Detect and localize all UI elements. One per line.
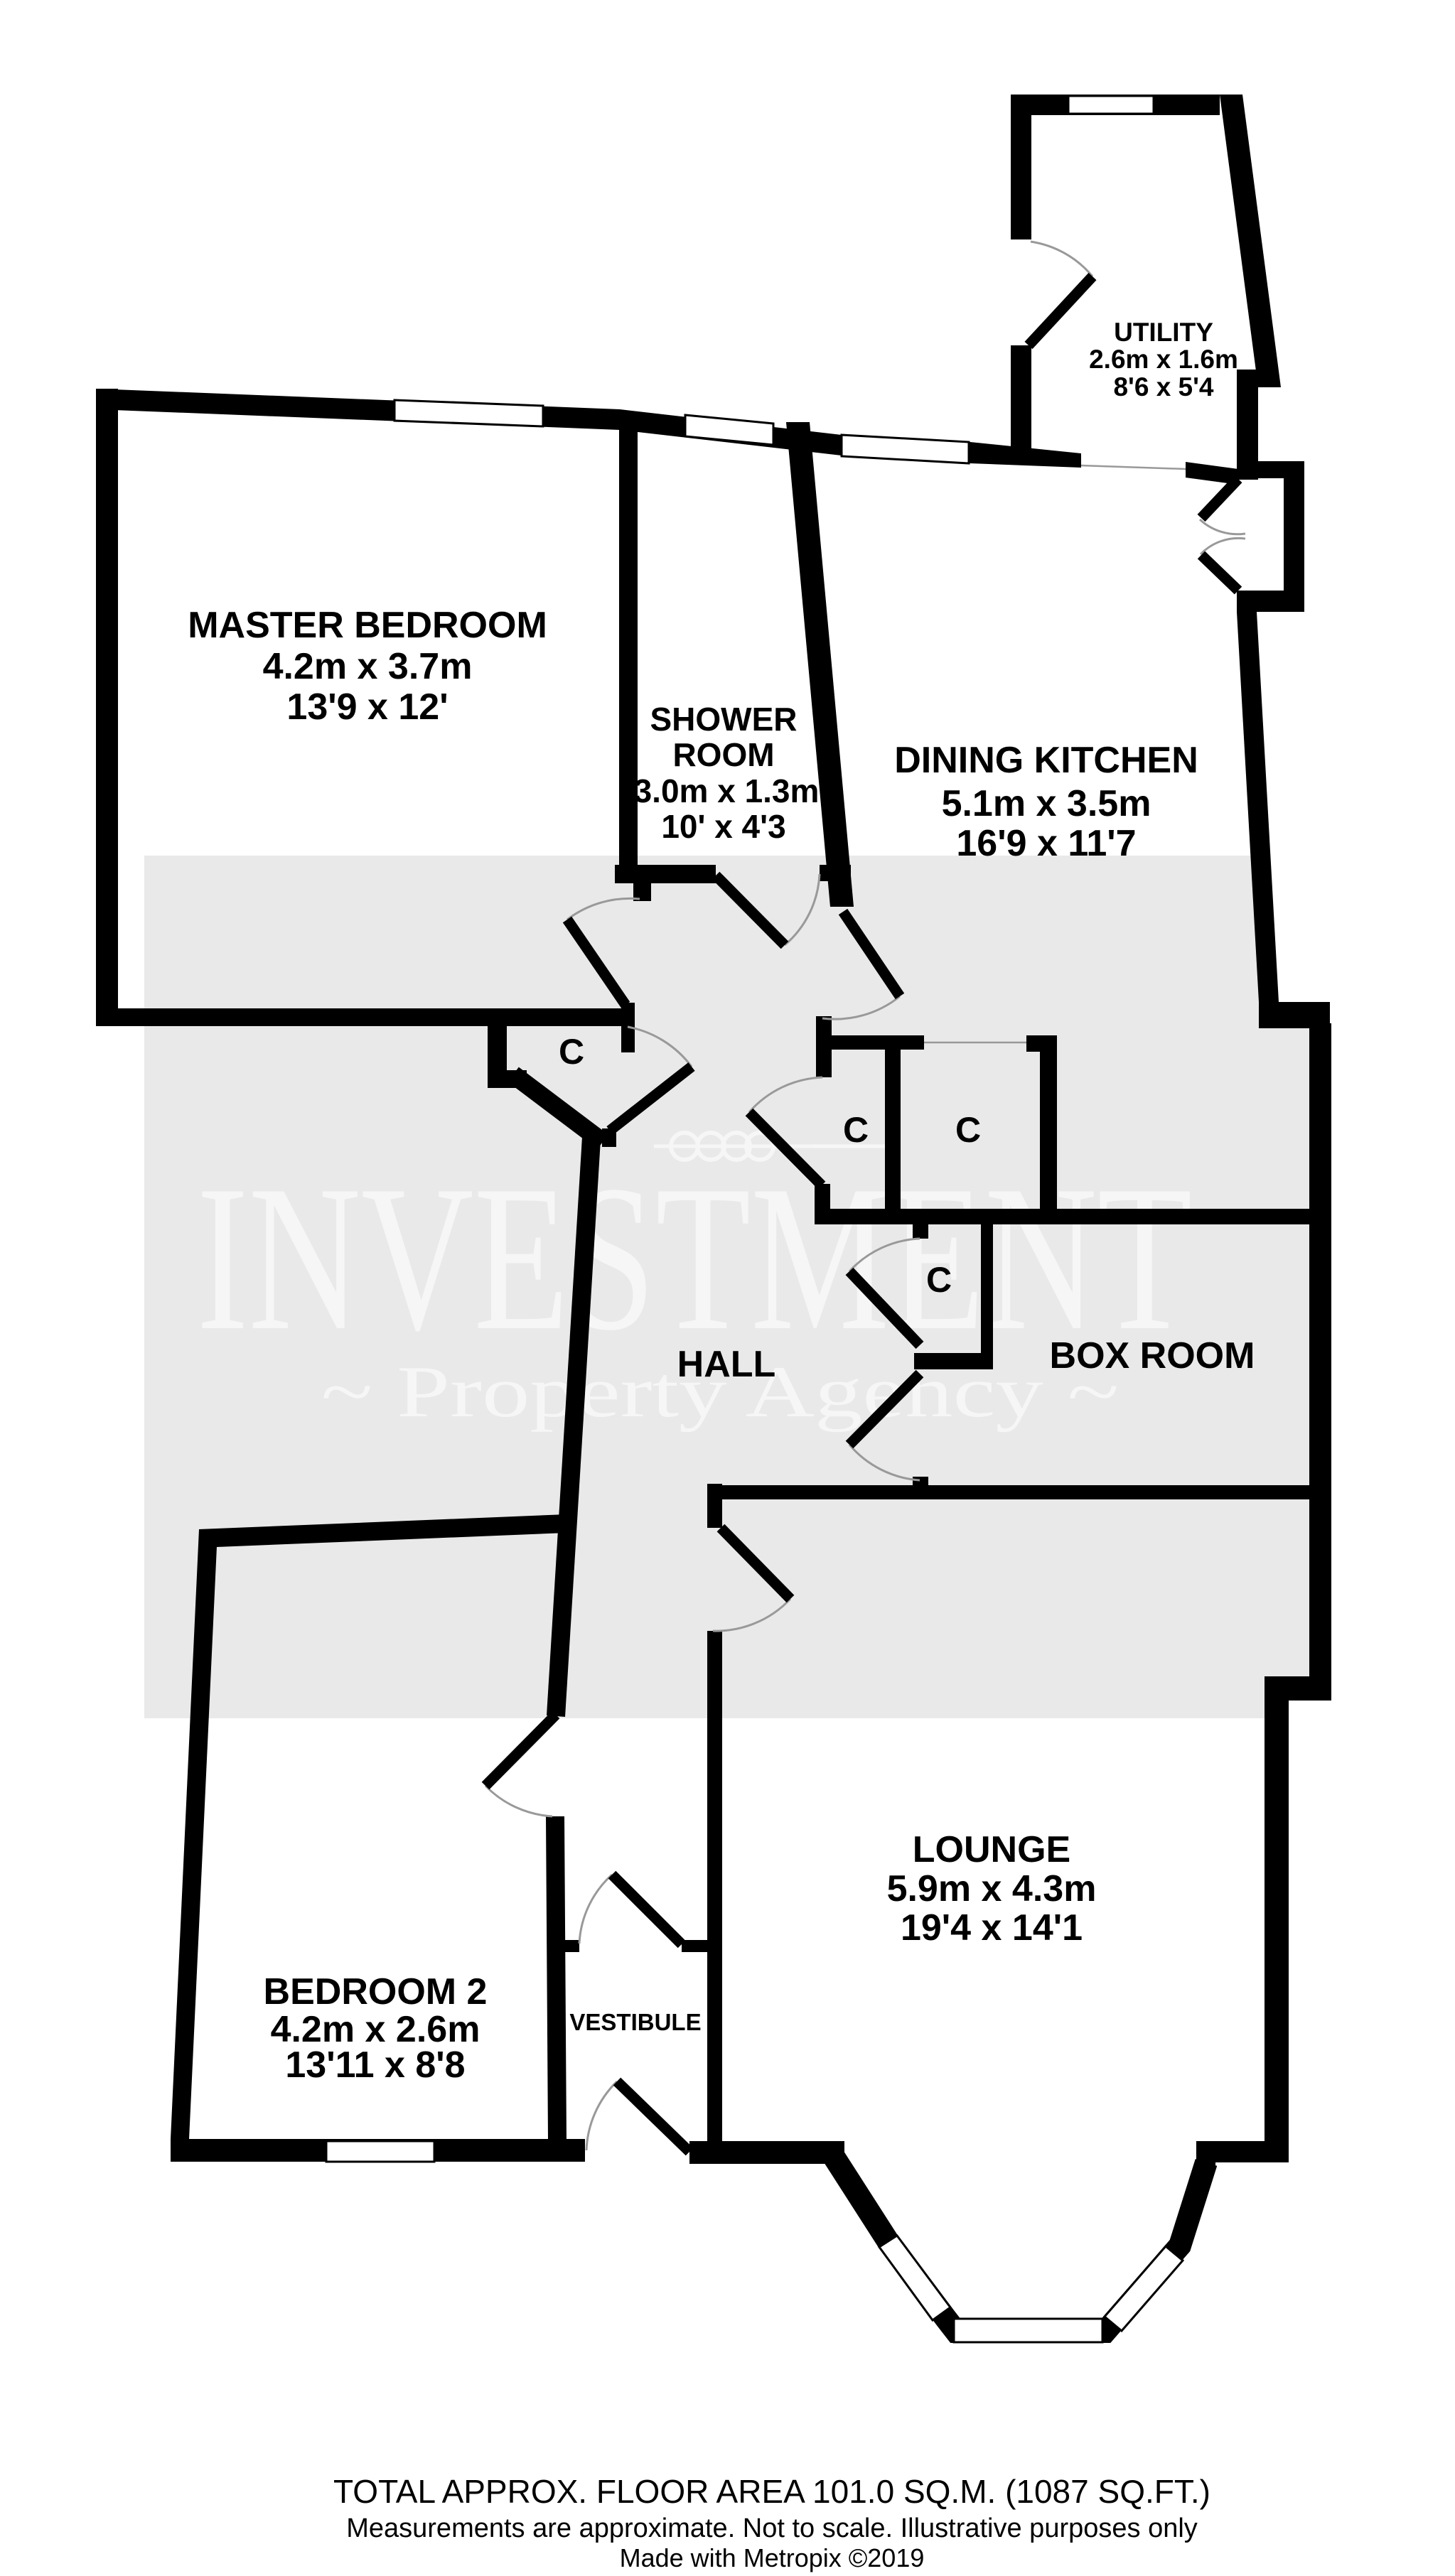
svg-text:UTILITY: UTILITY xyxy=(1114,318,1213,347)
svg-text:13'9 x 12': 13'9 x 12' xyxy=(286,686,448,728)
svg-text:BOX ROOM: BOX ROOM xyxy=(1050,1335,1255,1376)
svg-text:C: C xyxy=(955,1110,981,1150)
svg-text:5.9m x 4.3m: 5.9m x 4.3m xyxy=(887,1868,1097,1909)
svg-text:10' x 4'3: 10' x 4'3 xyxy=(661,808,785,845)
svg-text:MASTER BEDROOM: MASTER BEDROOM xyxy=(188,605,547,646)
svg-text:C: C xyxy=(926,1260,952,1300)
svg-text:VESTIBULE: VESTIBULE xyxy=(569,2009,701,2035)
svg-text:BEDROOM 2: BEDROOM 2 xyxy=(264,1971,488,2012)
svg-text:LOUNGE: LOUNGE xyxy=(913,1829,1070,1870)
svg-text:8'6 x 5'4: 8'6 x 5'4 xyxy=(1113,372,1213,402)
svg-text:HALL: HALL xyxy=(677,1344,776,1385)
svg-text:DINING KITCHEN: DINING KITCHEN xyxy=(894,740,1198,781)
svg-text:TOTAL APPROX. FLOOR AREA 101.0: TOTAL APPROX. FLOOR AREA 101.0 SQ.M. (10… xyxy=(333,2473,1210,2510)
svg-text:5.1m x 3.5m: 5.1m x 3.5m xyxy=(942,783,1151,824)
svg-text:Made with Metropix ©2019: Made with Metropix ©2019 xyxy=(620,2543,925,2572)
svg-text:4.2m x 3.7m: 4.2m x 3.7m xyxy=(263,646,473,687)
svg-text:13'11 x 8'8: 13'11 x 8'8 xyxy=(285,2044,465,2086)
svg-text:16'9 x 11'7: 16'9 x 11'7 xyxy=(956,823,1136,864)
svg-text:Measurements are approximate.: Measurements are approximate. Not to sca… xyxy=(346,2513,1198,2543)
svg-text:2.6m x 1.6m: 2.6m x 1.6m xyxy=(1089,345,1238,374)
svg-text:C: C xyxy=(843,1110,869,1150)
svg-text:ROOM: ROOM xyxy=(672,736,774,773)
svg-text:SHOWER: SHOWER xyxy=(650,701,798,738)
svg-text:C: C xyxy=(559,1032,584,1072)
svg-text:3.0m x 1.3m: 3.0m x 1.3m xyxy=(634,772,820,809)
svg-text:19'4 x 14'1: 19'4 x 14'1 xyxy=(901,1907,1083,1949)
